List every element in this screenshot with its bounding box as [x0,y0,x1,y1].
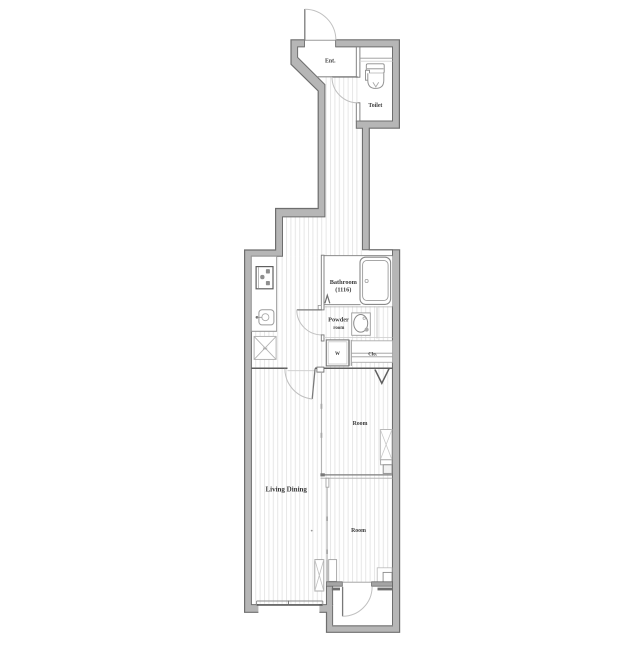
svg-text:Powder: Powder [328,317,349,324]
svg-text:W: W [335,352,340,357]
svg-text:Ent.: Ent. [325,59,336,65]
svg-text:room: room [333,326,344,331]
svg-text:Toilet: Toilet [368,103,382,109]
svg-text:Bathroom: Bathroom [330,279,358,286]
svg-text:Living Dining: Living Dining [265,486,307,494]
svg-text:Room: Room [351,528,366,534]
svg-text:(1116): (1116) [335,286,351,293]
svg-text:Ref: Ref [263,347,269,351]
svg-text:Room: Room [353,421,368,427]
svg-text:Clo.: Clo. [368,353,378,358]
